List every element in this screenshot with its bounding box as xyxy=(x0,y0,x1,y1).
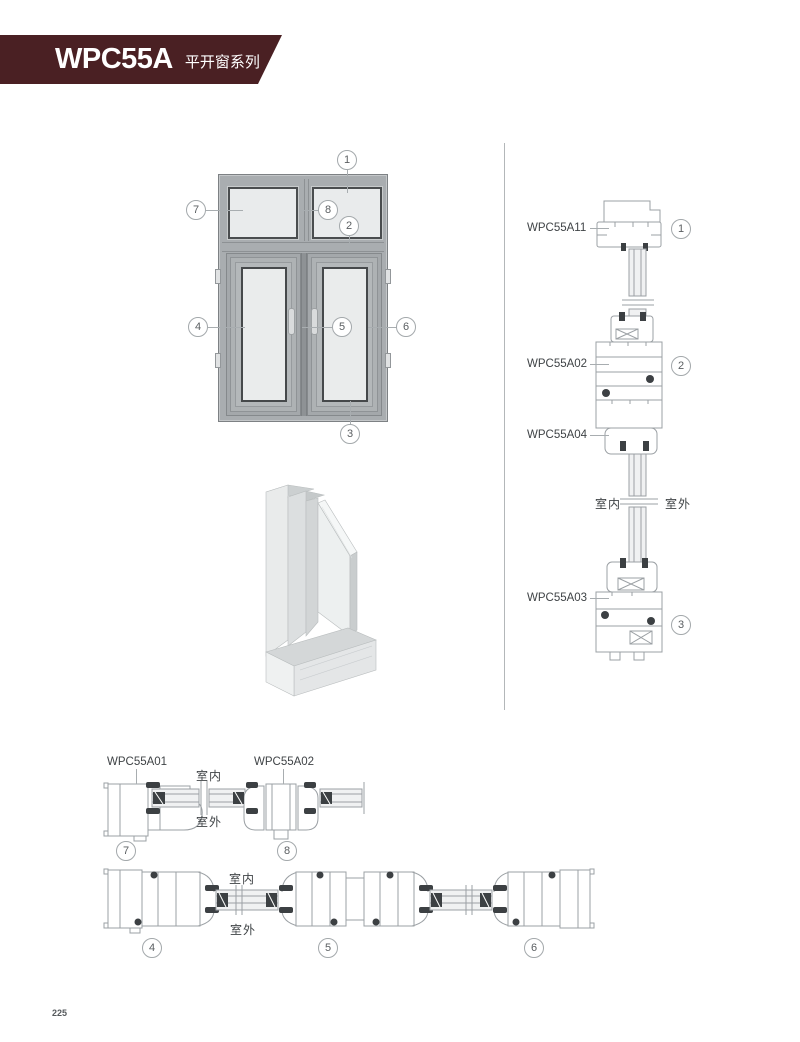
profile-label-wpc55a11: WPC55A11 xyxy=(527,222,586,234)
hs2-glass-right xyxy=(430,885,492,915)
series-banner: WPC55A 平开窗系列 xyxy=(0,35,282,84)
hs2-meeting-stiles xyxy=(279,872,433,927)
center-mullion xyxy=(301,253,307,416)
callout-5: 5 xyxy=(318,938,338,958)
callout-6: 6 xyxy=(524,938,544,958)
vs-glass-upper xyxy=(622,249,654,318)
page-number: 225 xyxy=(52,1008,67,1018)
profile-3d-render xyxy=(240,478,420,703)
leader-line xyxy=(283,769,284,784)
leader-line xyxy=(302,327,332,328)
hinge xyxy=(215,269,221,284)
hinge xyxy=(385,269,391,284)
hs1-mullion xyxy=(233,782,318,839)
callout-6: 6 xyxy=(396,317,416,337)
hs2-left-sash xyxy=(135,872,220,927)
indoor-label: 室内 xyxy=(196,767,222,784)
hinge xyxy=(385,353,391,368)
profile-label-wpc55a03: WPC55A03 xyxy=(527,592,587,604)
series-name: 平开窗系列 xyxy=(185,55,260,70)
profile-label-wpc55a04: WPC55A04 xyxy=(527,429,587,441)
vs-glass-lower xyxy=(620,454,658,564)
leader-line xyxy=(350,401,351,425)
outdoor-label: 室外 xyxy=(665,495,691,512)
vs-sill-profile xyxy=(596,558,662,660)
callout-8: 8 xyxy=(318,200,338,220)
indoor-label: 室内 xyxy=(595,495,621,512)
outdoor-label: 室外 xyxy=(230,921,256,938)
casement-glass-left xyxy=(241,267,287,402)
profile-label-wpc55a02: WPC55A02 xyxy=(254,756,314,768)
callout-7: 7 xyxy=(116,841,136,861)
window-handle-right xyxy=(311,308,318,335)
leader-line xyxy=(590,228,609,229)
leader-line xyxy=(208,327,245,328)
callout-3: 3 xyxy=(671,615,691,635)
indoor-label: 室内 xyxy=(229,870,255,887)
leader-line xyxy=(300,210,319,211)
leader-line xyxy=(206,210,243,211)
leader-line xyxy=(590,598,609,599)
vs-head-profile xyxy=(597,201,661,251)
outdoor-label: 室外 xyxy=(196,813,222,830)
series-code: WPC55A xyxy=(55,45,173,74)
hs1-left-frame xyxy=(104,783,148,841)
transom-line xyxy=(222,242,384,243)
profile-label-wpc55a02: WPC55A02 xyxy=(527,358,587,370)
profile-label-wpc55a01: WPC55A01 xyxy=(107,756,167,768)
leader-line xyxy=(590,435,609,436)
callout-2: 2 xyxy=(339,216,359,236)
leader-line xyxy=(136,769,137,784)
leader-line xyxy=(349,236,350,251)
transom-line xyxy=(222,251,384,252)
callout-1: 1 xyxy=(337,150,357,170)
callout-4: 4 xyxy=(142,938,162,958)
leader-line xyxy=(368,327,397,328)
hs1-glass-right xyxy=(320,782,364,814)
window-elevation-drawing xyxy=(218,174,388,422)
window-handle-left xyxy=(288,308,295,335)
callout-1: 1 xyxy=(671,219,691,239)
horizontal-section-drawing xyxy=(100,755,600,945)
callout-5: 5 xyxy=(332,317,352,337)
catalog-page: WPC55A 平开窗系列 1 7 8 xyxy=(0,0,800,1042)
section-divider-line xyxy=(504,143,505,710)
vs-transom-profile xyxy=(596,312,662,454)
callout-3: 3 xyxy=(340,424,360,444)
leader-line xyxy=(590,364,609,365)
leader-line xyxy=(347,170,348,193)
fixed-pane-left xyxy=(228,187,298,239)
callout-7: 7 xyxy=(186,200,206,220)
hs2-right-frame xyxy=(560,869,594,928)
callout-4: 4 xyxy=(188,317,208,337)
callout-2: 2 xyxy=(671,356,691,376)
hs2-glass-left xyxy=(216,885,278,915)
callout-8: 8 xyxy=(277,841,297,861)
hs2-right-sash xyxy=(493,872,560,927)
hinge xyxy=(215,353,221,368)
